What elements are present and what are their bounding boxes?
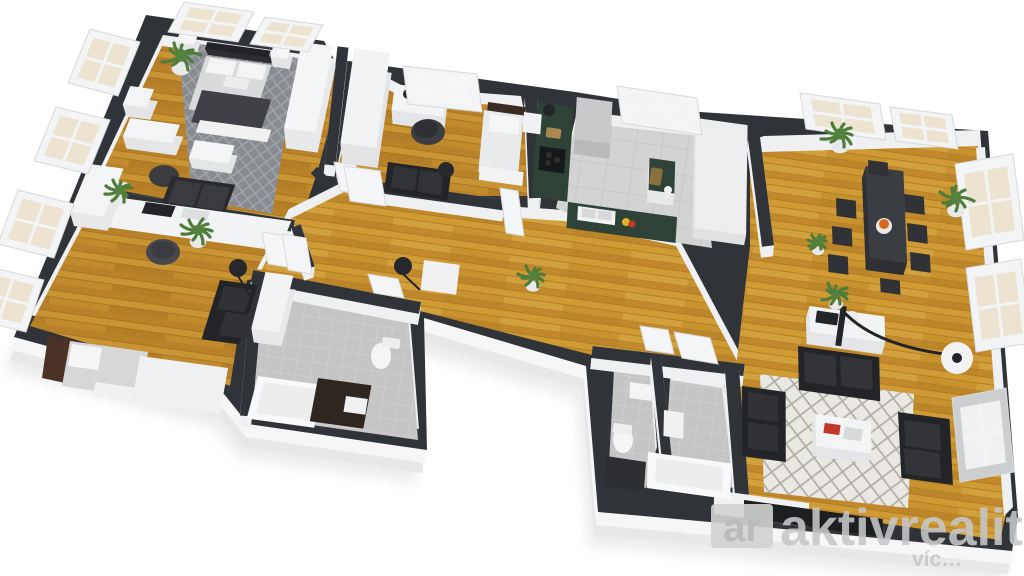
svg-text:aktivrealit: aktivrealit: [780, 499, 1023, 557]
svg-text:ar: ar: [723, 506, 761, 550]
svg-text:víc…: víc…: [912, 548, 962, 571]
